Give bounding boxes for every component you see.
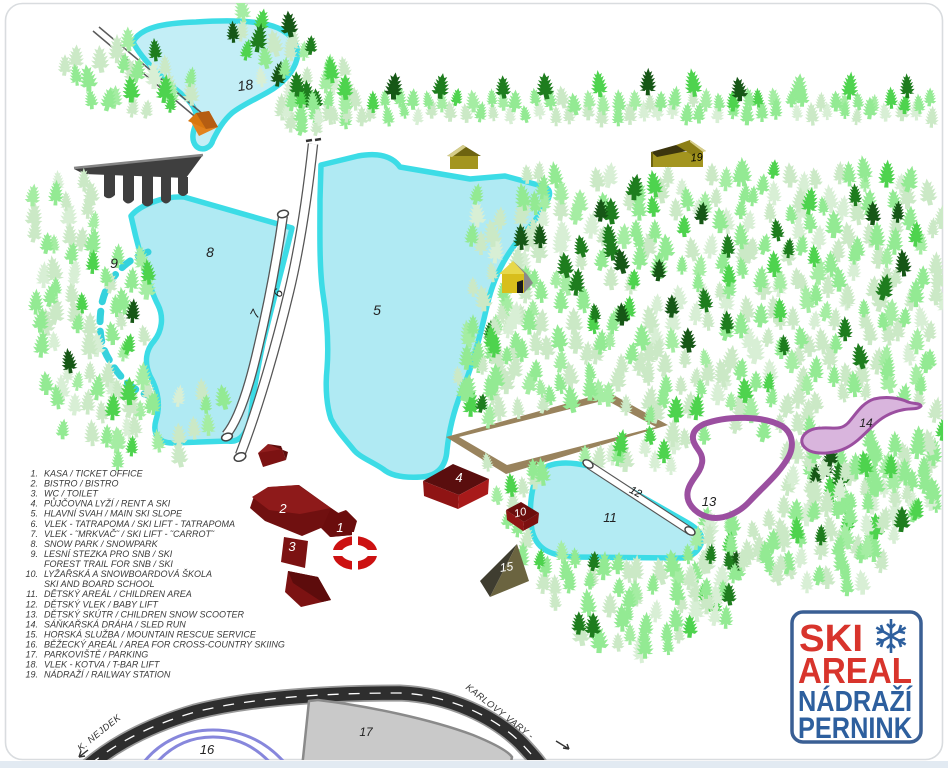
svg-text:10.: 10.	[25, 569, 38, 579]
svg-text:VLEK - TATRAPOMA / SKI LIFT -: VLEK - TATRAPOMA / SKI LIFT - TATRAPOMA	[44, 519, 235, 529]
svg-text:4.: 4.	[30, 499, 38, 509]
svg-text:19.: 19.	[25, 670, 38, 680]
svg-text:13: 13	[702, 494, 717, 509]
svg-text:17: 17	[359, 725, 374, 739]
svg-text:15.: 15.	[25, 630, 38, 640]
svg-text:15: 15	[499, 559, 514, 575]
svg-text:BISTRO / BISTRO: BISTRO / BISTRO	[44, 479, 119, 489]
svg-text:2.: 2.	[29, 479, 38, 489]
svg-text:PŮJČOVNA LYŽÍ / RENT A SKI: PŮJČOVNA LYŽÍ / RENT A SKI	[44, 498, 171, 509]
svg-text:18.: 18.	[25, 660, 38, 670]
svg-text:NÁDRAŽÍ / RAILWAY STATION: NÁDRAŽÍ / RAILWAY STATION	[44, 670, 171, 680]
svg-text:8: 8	[206, 244, 214, 260]
svg-text:8.: 8.	[30, 539, 38, 549]
svg-text:SKI AND BOARD SCHOOL: SKI AND BOARD SCHOOL	[44, 579, 155, 589]
svg-text:KASA / TICKET OFFICE: KASA / TICKET OFFICE	[44, 469, 144, 479]
svg-text:HLAVNÍ SVAH / MAIN SKI SLOPE: HLAVNÍ SVAH / MAIN SKI SLOPE	[44, 509, 183, 519]
svg-text:9: 9	[110, 255, 118, 271]
svg-text:14.: 14.	[25, 619, 38, 629]
svg-text:SNOW PARK / SNOWPARK: SNOW PARK / SNOWPARK	[44, 539, 159, 549]
svg-text:17.: 17.	[25, 650, 38, 660]
svg-text:3.: 3.	[30, 489, 38, 499]
svg-text:PARKOVIŠTĚ / PARKING: PARKOVIŠTĚ / PARKING	[44, 650, 148, 660]
svg-text:9.: 9.	[30, 549, 38, 559]
svg-text:BĚŽECKÝ AREÁL / AREA FOR CROSS: BĚŽECKÝ AREÁL / AREA FOR CROSS-COUNTRY S…	[44, 640, 285, 650]
svg-text:FOREST TRAIL FOR SNB / SKI: FOREST TRAIL FOR SNB / SKI	[44, 559, 173, 569]
svg-text:14: 14	[859, 416, 873, 430]
svg-text:SÁŇKAŘSKÁ DRÁHA / SLED RUN: SÁŇKAŘSKÁ DRÁHA / SLED RUN	[44, 619, 186, 629]
svg-text:AREAL: AREAL	[798, 650, 912, 691]
svg-text:18: 18	[236, 76, 254, 94]
svg-text:LESNÍ STEZKA PRO SNB / SKI: LESNÍ STEZKA PRO SNB / SKI	[44, 549, 173, 559]
svg-text:2: 2	[278, 501, 287, 516]
svg-text:DĚTSKÝ SKÚTR / CHILDREN SNOW S: DĚTSKÝ SKÚTR / CHILDREN SNOW SCOOTER	[44, 609, 245, 619]
svg-text:1: 1	[336, 520, 343, 535]
svg-text:1.: 1.	[30, 469, 38, 479]
svg-text:PERNINK: PERNINK	[798, 712, 912, 745]
svg-text:19: 19	[690, 152, 703, 165]
svg-text:VLEK - ˜MRKVAČ˜ / SKI LIFT - ˜: VLEK - ˜MRKVAČ˜ / SKI LIFT - ˜CARROT˜	[44, 529, 215, 539]
svg-text:7.: 7.	[30, 529, 38, 539]
svg-text:12.: 12.	[25, 599, 38, 609]
svg-text:4: 4	[455, 470, 462, 485]
svg-text:5: 5	[373, 302, 381, 318]
svg-text:5.: 5.	[30, 509, 38, 519]
svg-text:13.: 13.	[25, 609, 38, 619]
svg-text:11: 11	[603, 510, 617, 525]
svg-text:6.: 6.	[30, 519, 38, 529]
svg-text:DĚTSKÝ VLEK / BABY LIFT: DĚTSKÝ VLEK / BABY LIFT	[44, 599, 159, 609]
svg-text:LYŽAŘSKÁ A SNOWBOARDOVÁ ŠKOLA: LYŽAŘSKÁ A SNOWBOARDOVÁ ŠKOLA	[44, 569, 212, 579]
svg-text:11.: 11.	[26, 589, 38, 599]
svg-text:16: 16	[200, 742, 215, 757]
svg-text:VLEK - KOTVA / T-BAR LIFT: VLEK - KOTVA / T-BAR LIFT	[44, 660, 161, 670]
svg-text:WC / TOILET: WC / TOILET	[44, 489, 99, 499]
svg-text:HORSKÁ SLUŽBA / MOUNTAIN RESCU: HORSKÁ SLUŽBA / MOUNTAIN RESCUE SERVICE	[44, 630, 257, 640]
svg-text:16.: 16.	[25, 640, 38, 650]
svg-text:DĚTSKÝ AREÁL / CHILDREN AREA: DĚTSKÝ AREÁL / CHILDREN AREA	[44, 589, 192, 599]
svg-text:3: 3	[288, 539, 296, 554]
